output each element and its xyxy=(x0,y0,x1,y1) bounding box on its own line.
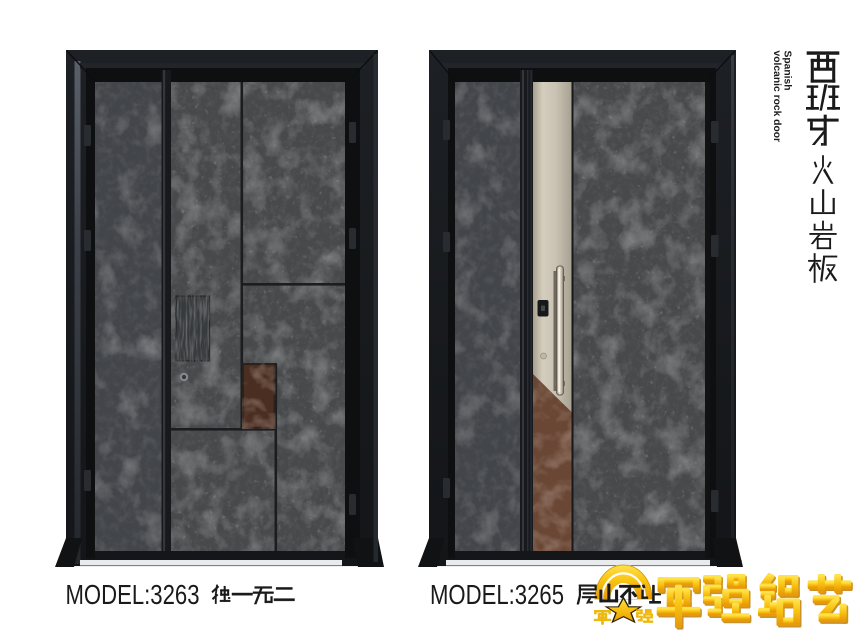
svg-text:MODEL:3265: MODEL:3265 xyxy=(430,579,564,610)
svg-text:MODEL:3263: MODEL:3263 xyxy=(66,579,200,610)
